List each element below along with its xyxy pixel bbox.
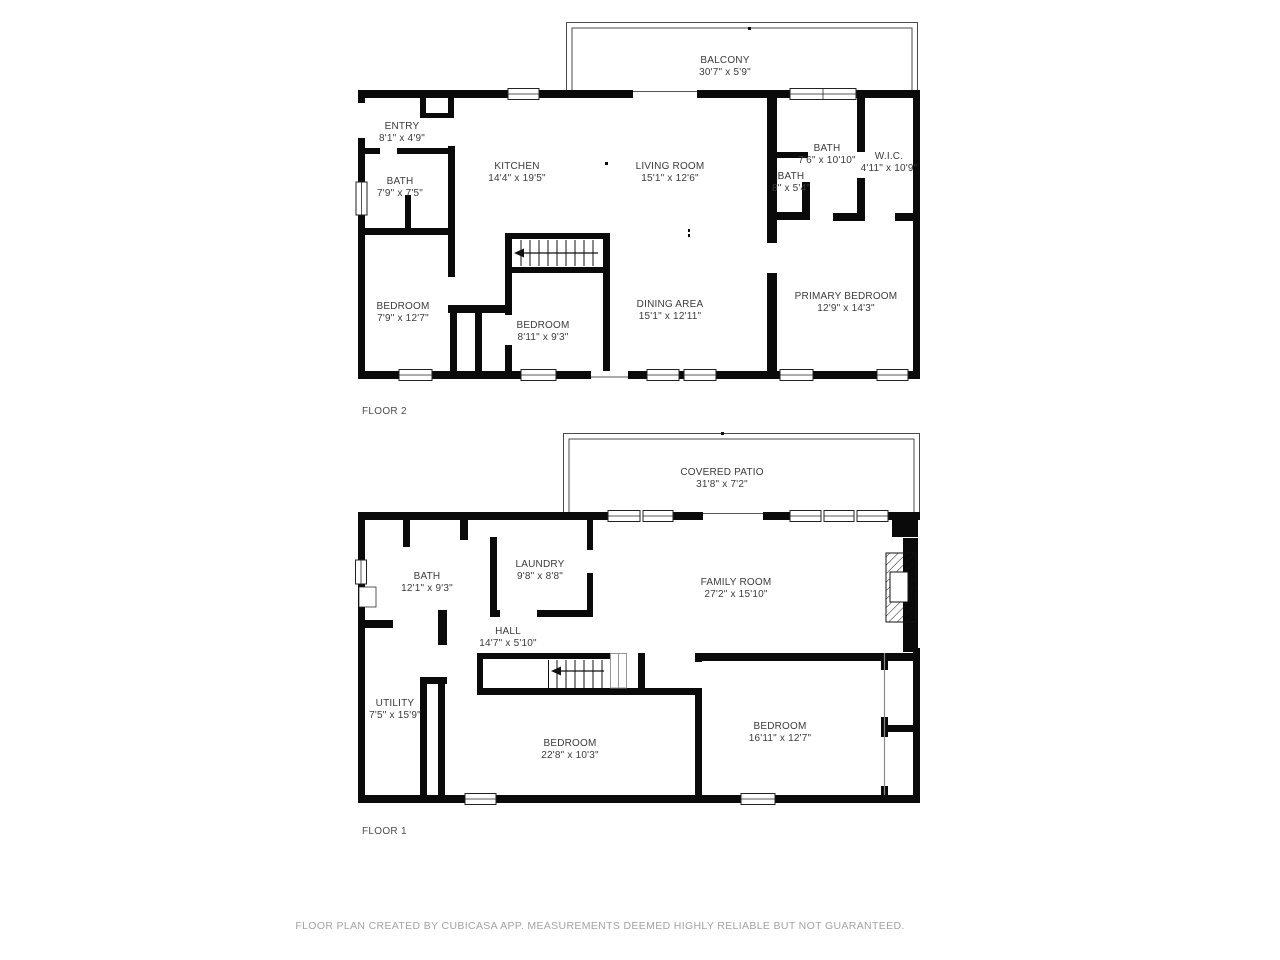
room-name: BATH (772, 171, 810, 183)
room-dimensions: 8" x 5'4" (772, 183, 810, 195)
stairs-up-arrow (551, 667, 561, 676)
room-name: ENTRY (379, 121, 425, 133)
floor1-walls (358, 512, 920, 803)
room-label-bedroom-right: BEDROOM 16'11" x 12'7" (749, 721, 811, 744)
room-label-dining-area: DINING AREA 15'1" x 12'11" (637, 299, 704, 322)
room-dimensions: 12'1" x 9'3" (401, 583, 453, 595)
wall-niche (359, 587, 376, 607)
room-label-bath-floor1: BATH 12'1" x 9'3" (401, 571, 453, 594)
room-dimensions: 4'11" x 10'9" (861, 163, 918, 175)
room-dimensions: 14'7" x 5'10" (479, 638, 536, 650)
floor-plan-page: { "colors": { "wall": "#0a0a0a", "thin_o… (0, 0, 1280, 960)
room-dimensions: 31'8" x 7'2" (680, 479, 763, 491)
room-name: FAMILY ROOM (701, 577, 772, 589)
room-name: DINING AREA (637, 299, 704, 311)
room-label-entry: ENTRY 8'1" x 4'9" (379, 121, 425, 144)
room-label-utility: UTILITY 7'5" x 15'9" (369, 698, 421, 721)
room-name: BATH (377, 176, 423, 188)
room-dimensions: 7'5" x 15'9" (369, 710, 421, 722)
room-dimensions: 30'7" x 5'9" (699, 67, 751, 79)
room-name: LAUNDRY (515, 559, 564, 571)
room-dimensions: 7'6" x 10'10" (798, 155, 855, 167)
room-label-bedroom-mid: BEDROOM 8'11" x 9'3" (516, 320, 569, 343)
room-label-wic: W.I.C. 4'11" x 10'9" (861, 151, 918, 174)
room-dimensions: 8'1" x 4'9" (379, 133, 425, 145)
room-label-bedroom-large: BEDROOM 22'8" x 10'3" (541, 738, 598, 761)
room-name: HALL (479, 626, 536, 638)
floor-2-label: FLOOR 2 (362, 406, 407, 417)
room-dimensions: 7'9" x 12'7" (376, 313, 429, 325)
room-name: BATH (401, 571, 453, 583)
room-dimensions: 15'1" x 12'11" (637, 311, 704, 323)
floor2-plan (356, 23, 920, 381)
room-label-bedroom-left: BEDROOM 7'9" x 12'7" (376, 301, 429, 324)
room-name: BALCONY (699, 55, 751, 67)
floor-plan-drawing (0, 0, 1280, 960)
room-dimensions: 12'9" x 14'3" (795, 303, 898, 315)
floor-1-label: FLOOR 1 (362, 826, 407, 837)
room-label-laundry: LAUNDRY 9'8" x 8'8" (515, 559, 564, 582)
room-label-bath-main: BATH 7'6" x 10'10" (798, 143, 855, 166)
room-name: W.I.C. (861, 151, 918, 163)
room-name: BEDROOM (516, 320, 569, 332)
room-label-hall: HALL 14'7" x 5'10" (479, 626, 536, 649)
footer-disclaimer: FLOOR PLAN CREATED BY CUBICASA APP. MEAS… (295, 920, 904, 932)
room-dimensions: 15'1" x 12'6" (636, 173, 705, 185)
room-label-primary-bedroom: PRIMARY BEDROOM 12'9" x 14'3" (795, 291, 898, 314)
room-label-family-room: FAMILY ROOM 27'2" x 15'10" (701, 577, 772, 600)
room-dimensions: 22'8" x 10'3" (541, 750, 598, 762)
room-label-kitchen: KITCHEN 14'4" x 19'5" (488, 161, 545, 184)
room-dimensions: 14'4" x 19'5" (488, 173, 545, 185)
room-dimensions: 9'8" x 8'8" (515, 571, 564, 583)
room-label-bath-upper: BATH 7'9" x 7'5" (377, 176, 423, 199)
room-dimensions: 27'2" x 15'10" (701, 589, 772, 601)
room-dimensions: 16'11" x 12'7" (749, 733, 811, 745)
room-name: BEDROOM (749, 721, 811, 733)
room-name: BEDROOM (541, 738, 598, 750)
room-name: BATH (798, 143, 855, 155)
room-label-covered-patio: COVERED PATIO 31'8" x 7'2" (680, 467, 763, 490)
floor2-walls (358, 90, 920, 379)
stairs-down-arrow (514, 249, 524, 258)
floor1-plan (356, 432, 921, 805)
fireplace (886, 553, 916, 622)
room-name: LIVING ROOM (636, 161, 705, 173)
room-label-bath-small: BATH 8" x 5'4" (772, 171, 810, 194)
room-label-living-room: LIVING ROOM 15'1" x 12'6" (636, 161, 705, 184)
room-dimensions: 8'11" x 9'3" (516, 332, 569, 344)
room-name: BEDROOM (376, 301, 429, 313)
room-name: UTILITY (369, 698, 421, 710)
floor2-stairs (514, 240, 598, 266)
room-name: COVERED PATIO (680, 467, 763, 479)
room-label-balcony: BALCONY 30'7" x 5'9" (699, 55, 751, 78)
room-dimensions: 7'9" x 7'5" (377, 188, 423, 200)
room-name: PRIMARY BEDROOM (795, 291, 898, 303)
room-name: KITCHEN (488, 161, 545, 173)
